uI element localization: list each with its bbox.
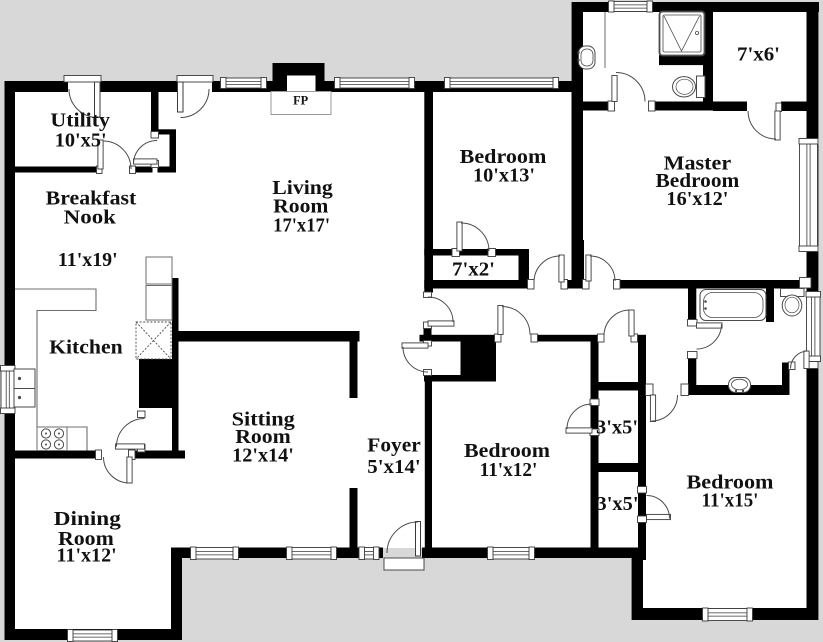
- svg-text:16'x12': 16'x12': [666, 188, 728, 210]
- svg-text:7'x2': 7'x2': [452, 259, 495, 281]
- svg-text:12'x14': 12'x14': [232, 445, 294, 467]
- svg-text:11'x12': 11'x12': [57, 545, 117, 567]
- svg-text:10'x5': 10'x5': [55, 130, 107, 152]
- svg-text:11'x19': 11'x19': [58, 249, 118, 271]
- svg-text:10'x13': 10'x13': [473, 165, 535, 187]
- svg-text:Nook: Nook: [64, 206, 117, 228]
- svg-text:Dining: Dining: [54, 508, 121, 530]
- svg-text:Kitchen: Kitchen: [49, 337, 123, 359]
- svg-text:7'x6': 7'x6': [737, 44, 780, 66]
- svg-text:11'x15': 11'x15': [702, 490, 759, 512]
- svg-text:Foyer: Foyer: [367, 435, 421, 457]
- svg-text:3'x5': 3'x5': [597, 493, 639, 515]
- svg-text:FP: FP: [293, 93, 308, 108]
- svg-text:Utility: Utility: [50, 110, 110, 132]
- svg-text:5'x14': 5'x14': [367, 456, 421, 478]
- svg-text:17'x17': 17'x17': [273, 215, 330, 237]
- svg-text:11'x12': 11'x12': [480, 459, 538, 481]
- svg-text:3'x5': 3'x5': [596, 417, 638, 439]
